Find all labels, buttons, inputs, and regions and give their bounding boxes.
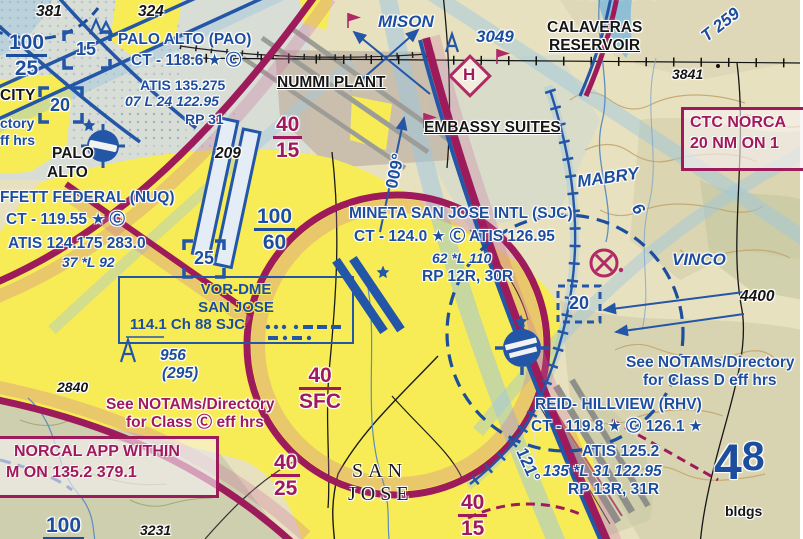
- landmark-bldgs: bldgs: [725, 504, 762, 519]
- spot-elev-381: 381: [36, 4, 62, 21]
- reservoir-calaveras-1: CALAVERAS: [547, 20, 642, 37]
- obstacle-956: 956: [160, 348, 186, 365]
- apt-sjc-name: MINETA SAN JOSE INTL (SJC): [349, 206, 573, 223]
- notam-classc-2: for Class Ⓒ eff hrs: [126, 415, 264, 432]
- classc-alt-40-15-west: 4015: [273, 114, 302, 161]
- alt-box-15: 15: [76, 40, 96, 59]
- notam-fragment-1: ctory: [0, 116, 34, 131]
- classb-alt-100-60: 10060: [254, 206, 295, 253]
- city-fragment: CITY: [0, 88, 35, 105]
- mef-48: 48: [714, 434, 765, 489]
- classc-ring-label: CLASS C: [574, 0, 663, 4]
- waypoint-vinco: VINCO: [672, 251, 726, 269]
- apt-pao-atis: ATIS 135.275: [140, 78, 225, 93]
- airway-t259: T 259: [698, 5, 744, 46]
- spot-elev-3231: 3231: [140, 523, 171, 538]
- spot-elev-324: 324: [138, 4, 164, 21]
- apt-pao-name: PALO ALTO (PAO): [118, 32, 251, 49]
- apt-rhv-rp: RP 13R, 31R: [568, 482, 659, 499]
- apt-nuq-atis: ATIS 124.175 283.0: [8, 236, 146, 253]
- obstacle-956-agl: (295): [162, 366, 198, 383]
- apt-nuq-name: FFETT FEDERAL (NUQ): [0, 190, 175, 207]
- spot-elev-209: 209: [215, 146, 241, 163]
- classb-alt-100-25: 10025: [6, 32, 47, 79]
- classc-alt-40-sfc: 40SFC: [299, 365, 341, 412]
- waypoint-mabry: MABRY: [576, 165, 640, 192]
- helipad-h: H: [463, 66, 475, 84]
- landmark-nummi-plant: NUMMI PLANT: [277, 75, 386, 92]
- notam-classd-2: for Class D eff hrs: [643, 373, 777, 390]
- classc-alt-40-25: 4025: [271, 452, 300, 499]
- city-san: SAN: [352, 461, 407, 483]
- classb-alt-100-partial: 100: [43, 515, 84, 539]
- notam-classc-1: See NOTAMs/Directory: [106, 397, 275, 414]
- apt-sjc-rwy: 62 *L 110: [432, 251, 491, 266]
- reservoir-calaveras-2: RESERVOIR: [549, 38, 640, 55]
- apt-nuq-ct: CT - 119.55 ★ Ⓒ: [6, 212, 125, 229]
- apt-rhv-rwy: 135 *L 31 122.95: [543, 464, 662, 481]
- spot-elev-4400: 4400: [740, 289, 774, 306]
- sectional-chart: VOR-DME SAN JOSE 114.1 Ch 88 SJC NORCAL …: [0, 0, 803, 539]
- map-labels: 381324PALO ALTO (PAO)CT - 118.6 ★ ⒸATIS …: [0, 0, 803, 539]
- city-palo: PALO: [52, 146, 94, 163]
- spot-elev-2840: 2840: [57, 380, 88, 395]
- spot-elev-3841: 3841: [672, 67, 703, 82]
- apt-pao-rwy: 07 L 24 122.95: [125, 94, 219, 109]
- apt-pao-ct: CT - 118.6 ★ Ⓒ: [131, 53, 241, 70]
- alt-box-20-right: 20: [569, 294, 589, 313]
- apt-sjc-rp: RP 12R, 30R: [422, 269, 513, 286]
- notam-fragment-2: ff hrs: [0, 133, 35, 148]
- airway-6: 6: [627, 200, 648, 218]
- city-jose: JOSE: [348, 484, 414, 506]
- alt-box-25: 25: [194, 249, 214, 268]
- apt-rhv-name: REID- HILLVIEW (RHV): [535, 397, 702, 414]
- apt-rhv-atis: ATIS 125.2: [582, 444, 659, 461]
- notam-classd-1: See NOTAMs/Directory: [626, 355, 795, 372]
- bearing-009: 009°: [383, 152, 408, 190]
- alt-box-20-left: 20: [50, 96, 70, 115]
- apt-rhv-ct: CT - 119.8 ★ Ⓒ 126.1 ★: [531, 419, 703, 436]
- obstacle-3049: 3049: [476, 28, 514, 46]
- classc-alt-40-15-south: 4015: [458, 492, 487, 539]
- bearing-121: 121°: [512, 445, 543, 485]
- waypoint-mison: MISON: [378, 13, 434, 31]
- apt-sjc-ct: CT - 124.0 ★ Ⓒ ATIS 126.95: [354, 229, 555, 246]
- landmark-embassy-suites: EMBASSY SUITES: [424, 120, 561, 137]
- city-alto: ALTO: [47, 165, 88, 182]
- apt-pao-rp: RP 31: [185, 112, 224, 127]
- apt-nuq-rwy: 37 *L 92: [62, 255, 115, 270]
